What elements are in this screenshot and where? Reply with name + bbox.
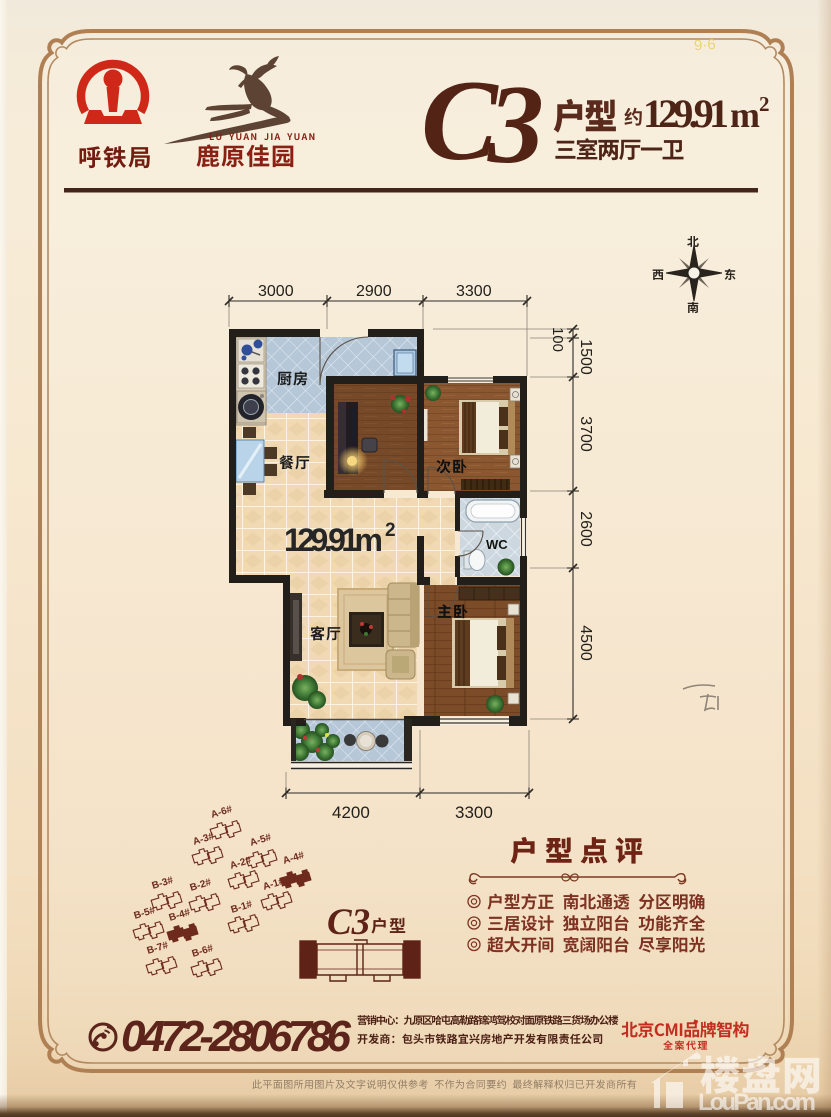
svg-text:2: 2 (385, 520, 396, 541)
svg-text:WC: WC (486, 537, 508, 552)
svg-text:9·6: 9·6 (693, 36, 716, 54)
svg-text:100: 100 (549, 327, 566, 352)
svg-text:m: m (730, 95, 760, 135)
svg-text:2600: 2600 (577, 511, 594, 547)
svg-text:1500: 1500 (577, 339, 594, 375)
svg-text:3300: 3300 (456, 283, 492, 300)
svg-text:4200: 4200 (332, 803, 370, 822)
svg-text:129.91: 129.91 (643, 91, 729, 136)
svg-text:3300: 3300 (455, 803, 493, 822)
svg-text:3: 3 (487, 63, 544, 187)
svg-text:LouPan.com: LouPan.com (698, 1089, 816, 1116)
svg-text:2: 2 (759, 92, 770, 116)
svg-text:3000: 3000 (258, 283, 294, 300)
svg-text:4500: 4500 (577, 625, 594, 661)
svg-text:2900: 2900 (356, 283, 392, 300)
svg-text:3700: 3700 (577, 416, 594, 452)
svg-text:0472-2806786: 0472-2806786 (121, 1012, 352, 1061)
svg-text:129.91m: 129.91m (284, 522, 383, 558)
svg-text:C3: C3 (327, 902, 370, 943)
